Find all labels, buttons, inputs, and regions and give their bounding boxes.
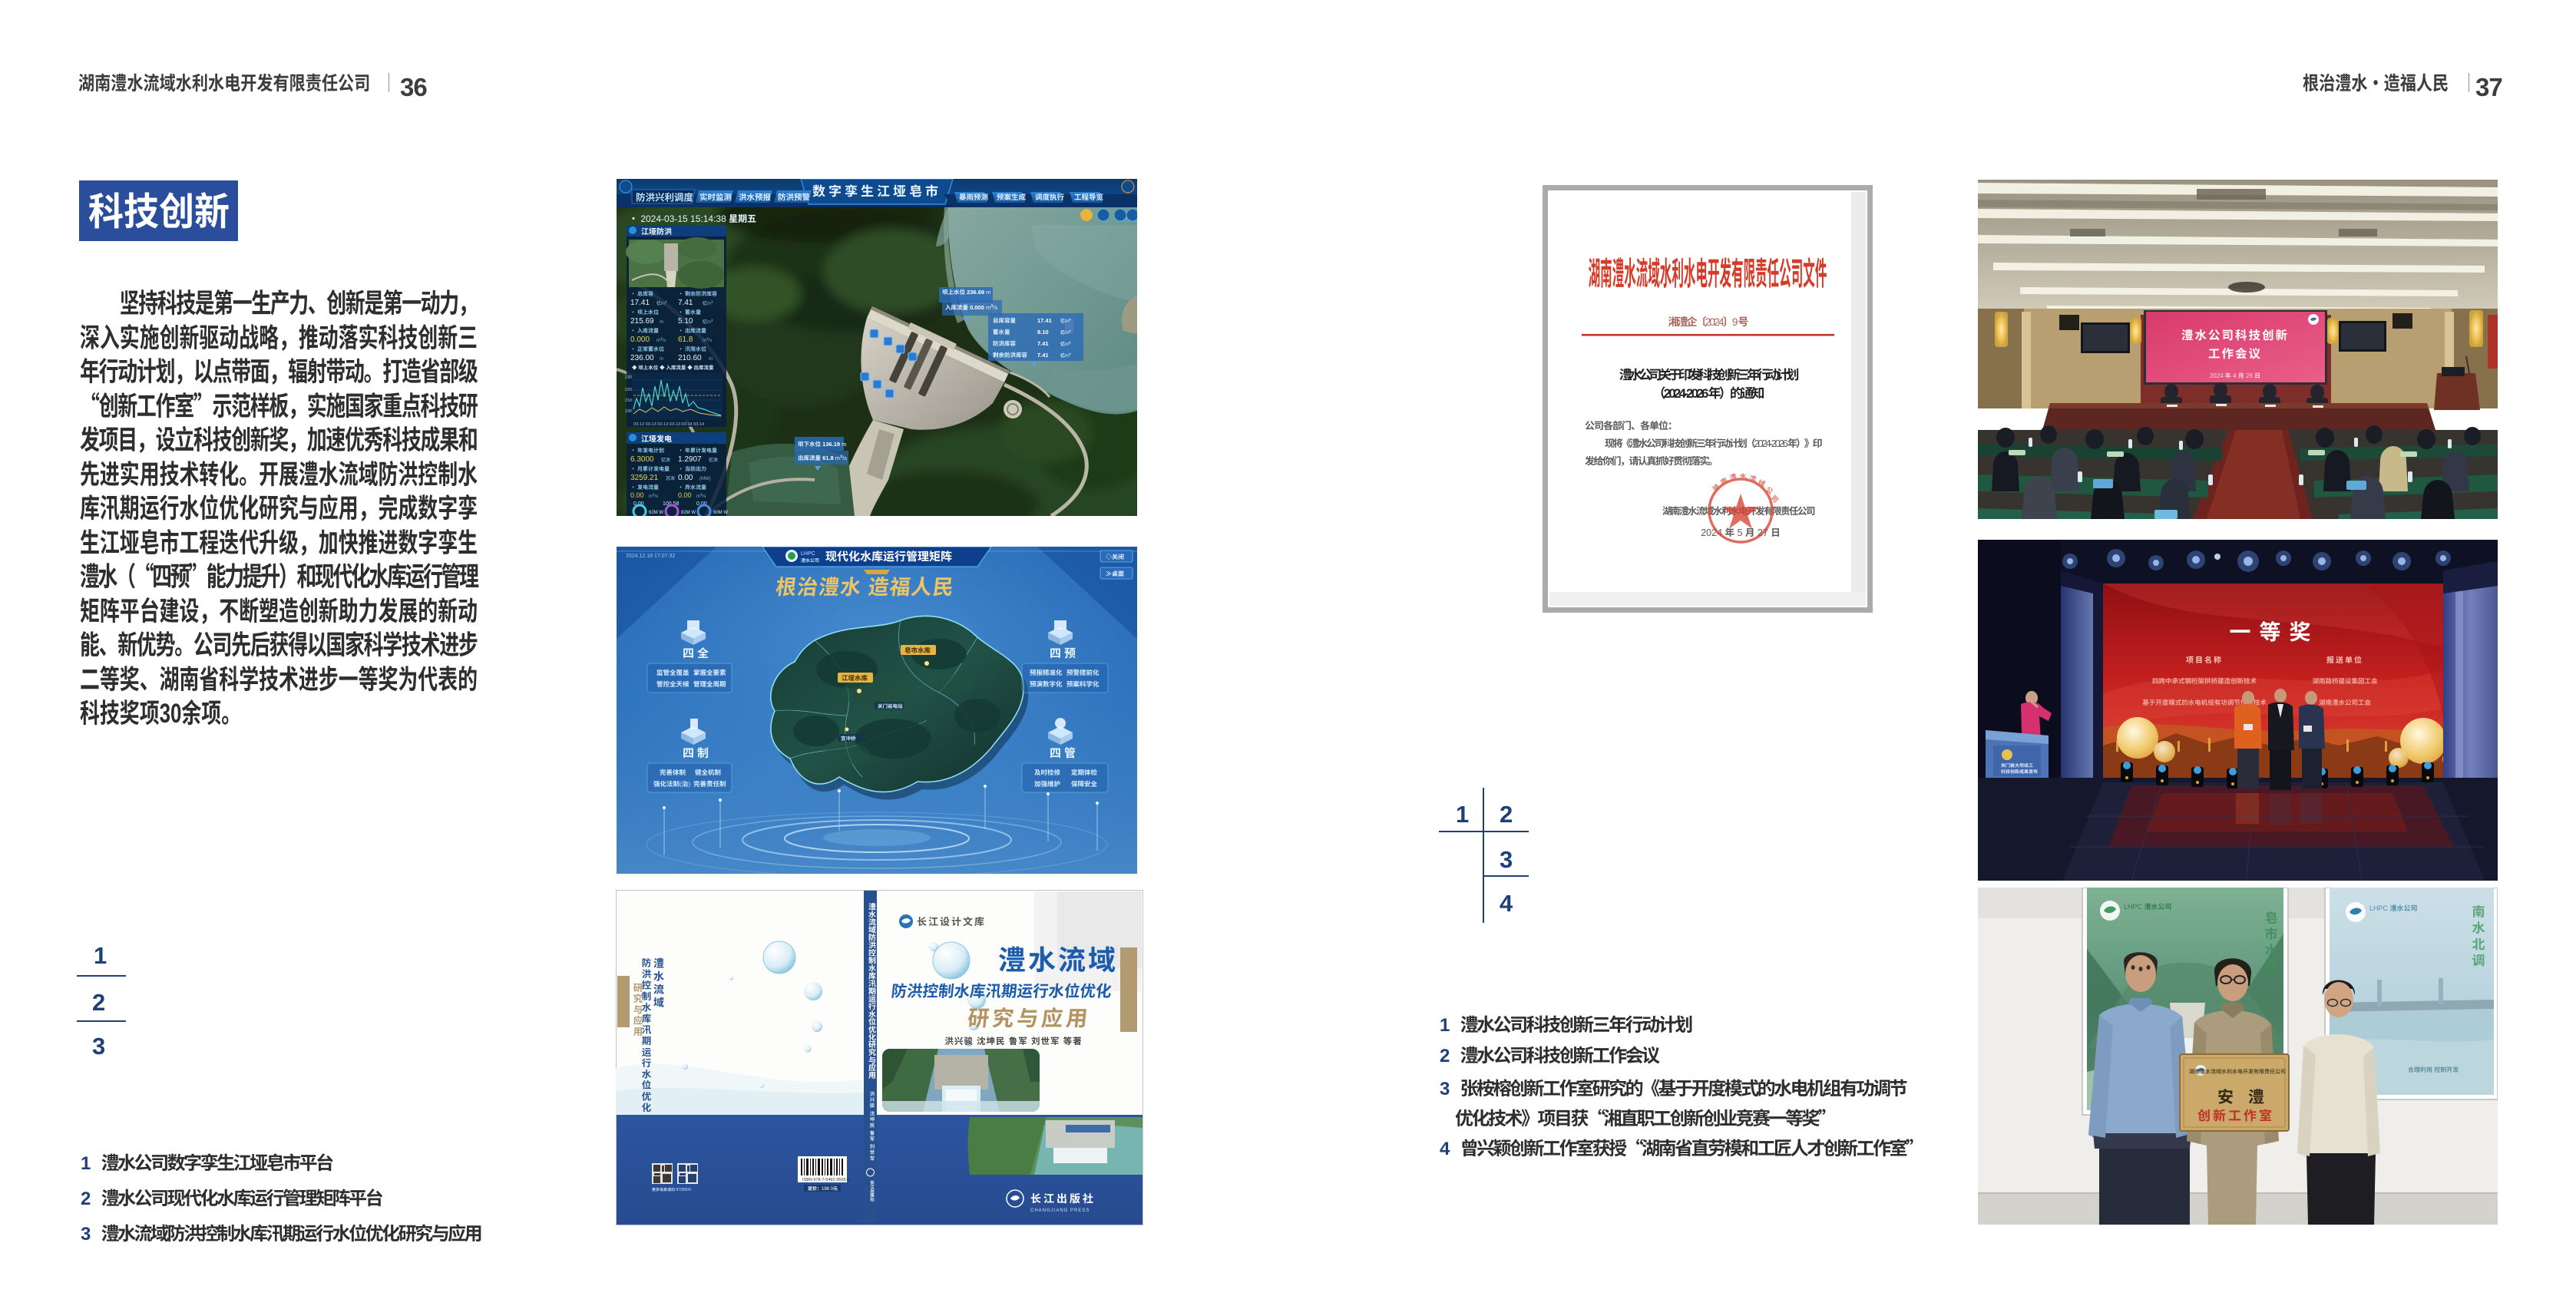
svg-text:210.60: 210.60 [678, 351, 702, 362]
svg-text:澧水公司科技创新: 澧水公司科技创新 [2181, 326, 2289, 343]
svg-text:及时检修: 及时检修 [1034, 768, 1061, 777]
svg-text:61.8: 61.8 [678, 332, 693, 344]
svg-text:预案科学化: 预案科学化 [1066, 679, 1100, 689]
svg-text:预报精准化: 预报精准化 [1030, 668, 1063, 677]
svg-text:万次: 万次 [666, 474, 675, 481]
svg-text:亿m³: 亿m³ [703, 318, 713, 325]
svg-text:洪兴骏 沈坤民 鲁军 刘世军 等著: 洪兴骏 沈坤民 鲁军 刘世军 等著 [944, 1035, 1082, 1047]
svg-text:≫桌面: ≫桌面 [1106, 570, 1124, 578]
svg-text:预警提前化: 预警提前化 [1066, 668, 1100, 677]
svg-text:南水北调: 南水北调 [2469, 904, 2488, 969]
svg-text:防洪兴利调度: 防洪兴利调度 [636, 190, 694, 204]
svg-text:• 2024-03-15 15:14:38 星期五: • 2024-03-15 15:14:38 星期五 [629, 212, 756, 225]
svg-text:亿m³: 亿m³ [1060, 317, 1071, 324]
svg-text:0.00: 0.00 [630, 490, 644, 500]
svg-text:2024.12.18 17:07:32: 2024.12.18 17:07:32 [626, 552, 675, 560]
svg-text:保障安全: 保障安全 [1071, 779, 1098, 789]
svg-text:亿m³: 亿m³ [1060, 340, 1071, 347]
svg-text:四制: 四制 [683, 745, 712, 761]
svg-text:定价：198 0元: 定价：198 0元 [808, 1185, 838, 1192]
svg-text:创新工作室: 创新工作室 [2197, 1105, 2274, 1124]
svg-text:（2024-2026 年）的通知: （2024-2026 年）的通知 [1652, 382, 1764, 402]
svg-text:6.3000: 6.3000 [630, 452, 654, 464]
svg-text:(MW): (MW) [699, 474, 711, 481]
svg-text:出库流量 61.8 m³/s: 出库流量 61.8 m³/s [798, 454, 847, 462]
svg-text:水: 水 [1739, 471, 1747, 481]
svg-text:7.41: 7.41 [678, 296, 693, 307]
svg-text:工作会议: 工作会议 [2208, 345, 2262, 362]
svg-text:报送单位: 报送单位 [2326, 653, 2363, 665]
svg-text:190: 190 [625, 408, 632, 414]
svg-text:62M W: 62M W [649, 508, 663, 515]
svg-text:现代化水库运行管理矩阵: 现代化水库运行管理矩阵 [825, 548, 952, 564]
svg-text:宜冲桥: 宜冲桥 [841, 734, 856, 742]
svg-text:更多信息请扫 8705609: 更多信息请扫 8705609 [652, 1187, 691, 1192]
svg-text:江垭水库: 江垭水库 [842, 673, 868, 683]
svg-text:数字孪生江垭皂市: 数字孪生江垭皂市 [812, 180, 941, 200]
svg-text:215.69: 215.69 [630, 314, 654, 326]
svg-text:掌握全要素: 掌握全要素 [693, 668, 726, 677]
svg-text:防洪库容: 防洪库容 [993, 339, 1016, 348]
svg-text:5.10: 5.10 [678, 314, 693, 326]
svg-text:防洪控制水库汛期运行水位优化: 防洪控制水库汛期运行水位优化 [890, 978, 1113, 1001]
svg-text:剩余防洪库容: 剩余防洪库容 [993, 351, 1027, 359]
svg-text:总库容量: 总库容量 [993, 316, 1016, 325]
svg-text:科技创新成果发布: 科技创新成果发布 [2001, 768, 2038, 775]
svg-text:2024 年 4 月 26 日: 2024 年 4 月 26 日 [2210, 372, 2260, 380]
svg-text:强化法制(治): 强化法制(治) [653, 779, 690, 789]
svg-text:四跨中承式钢桁架拱桥建造创新技术: 四跨中承式钢桁架拱桥建造创新技术 [2152, 676, 2257, 686]
svg-text:CHANGJIANG PRESS: CHANGJIANG PRESS [1030, 1208, 1090, 1213]
svg-text:预演数字化: 预演数字化 [1030, 679, 1063, 689]
svg-text:监管全覆盖: 监管全覆盖 [656, 668, 689, 677]
svg-text:澧水公司: 澧水公司 [801, 557, 819, 564]
svg-text:四管: 四管 [1050, 745, 1079, 761]
svg-text:皂市水库: 皂市水库 [2262, 911, 2281, 975]
svg-text:发给你们，请认真抓好贯彻落实。: 发给你们，请认真抓好贯彻落实。 [1585, 453, 1718, 468]
svg-text:03-12 03-13 03-13 03-13 03-14: 03-12 03-13 03-13 03-13 03-14 03-14 [633, 421, 704, 427]
svg-text:长江出版社: 长江出版社 [869, 1180, 875, 1202]
svg-text:230: 230 [625, 374, 632, 380]
svg-text:7.41: 7.41 [1037, 351, 1049, 359]
svg-text:220: 220 [625, 386, 632, 392]
svg-text:坝上水位 236.69 m: 坝上水位 236.69 m [942, 288, 990, 296]
svg-text:0.00: 0.00 [678, 471, 693, 482]
svg-text:m³/s: m³/s [656, 336, 666, 343]
svg-text:澧水流域防洪控制水库汛期运行水位优化研究与应用: 澧水流域防洪控制水库汛期运行水位优化研究与应用 [867, 902, 878, 1079]
svg-text:四全: 四全 [683, 645, 712, 661]
svg-text:蓄水量: 蓄水量 [993, 328, 1010, 336]
svg-text:湖南路桥建设集团工会: 湖南路桥建设集团工会 [2312, 676, 2378, 686]
svg-text:236.00: 236.00 [630, 351, 654, 362]
svg-text:坝下水位 136.19 m: 坝下水位 136.19 m [798, 440, 846, 448]
svg-text:管理全周期: 管理全周期 [693, 679, 726, 689]
svg-text:1.2907: 1.2907 [678, 452, 702, 464]
svg-text:加强维护: 加强维护 [1034, 779, 1060, 789]
svg-text:长江设计文库: 长江设计文库 [917, 914, 986, 928]
svg-text:m: m [709, 355, 713, 362]
svg-text:m³/s: m³/s [696, 492, 706, 499]
svg-text:定期体检: 定期体检 [1071, 768, 1098, 777]
svg-text:合理利用 控制开发: 合理利用 控制开发 [2408, 1066, 2459, 1074]
svg-text:洪水预报: 洪水预报 [739, 192, 771, 203]
svg-text:17.41: 17.41 [630, 296, 650, 307]
svg-text:湘澧企〔2024〕9 号: 湘澧企〔2024〕9 号 [1668, 314, 1749, 329]
svg-text:ISBN 978-7-5492-9565-9: ISBN 978-7-5492-9565-9 [802, 1178, 849, 1182]
svg-text:研究与应用: 研究与应用 [631, 982, 646, 1038]
svg-text:m: m [660, 355, 663, 362]
svg-text:预案生成: 预案生成 [997, 191, 1027, 202]
svg-text:LHPC 澧水公司: LHPC 澧水公司 [2124, 901, 2172, 911]
svg-text:根治澧水 造福人民: 根治澧水 造福人民 [774, 570, 956, 600]
svg-text:皂市水库: 皂市水库 [904, 646, 931, 655]
svg-text:7.41: 7.41 [1037, 339, 1049, 348]
svg-text:调度执行: 调度执行 [1035, 191, 1065, 202]
svg-text:流: 流 [1749, 473, 1758, 484]
svg-text:公司各部门、各单位：: 公司各部门、各单位： [1585, 418, 1677, 432]
svg-text:健全机制: 健全机制 [695, 768, 721, 777]
svg-text:关门岩电站: 关门岩电站 [878, 702, 903, 709]
svg-text:洪兴骏 沈坤民 鲁军 刘世军: 洪兴骏 沈坤民 鲁军 刘世军 [868, 1091, 876, 1161]
svg-text:实时监测: 实时监测 [699, 192, 732, 203]
svg-text:暴雨预测: 暴雨预测 [959, 191, 988, 202]
svg-text:四预: 四预 [1050, 645, 1079, 661]
svg-text:澧水流域: 澧水流域 [998, 938, 1118, 978]
svg-text:研究与应用: 研究与应用 [966, 1001, 1092, 1033]
svg-text:亿m³: 亿m³ [1060, 329, 1071, 336]
svg-text:入库流量 0.000 m³/s: 入库流量 0.000 m³/s [945, 303, 997, 312]
svg-text:LHPC 澧水公司: LHPC 澧水公司 [2369, 903, 2418, 913]
svg-text:亿次: 亿次 [661, 456, 670, 463]
svg-text:湖南澧水公司工会: 湖南澧水公司工会 [2319, 698, 2372, 707]
svg-text:澧水公司关于印发科技创新三年行动计划: 澧水公司关于印发科技创新三年行动计划 [1619, 364, 1799, 383]
svg-text:亿m³: 亿m³ [656, 299, 667, 306]
svg-text:完善体制: 完善体制 [660, 768, 686, 777]
svg-text:工程导览: 工程导览 [1074, 191, 1104, 202]
svg-text:m³/s: m³/s [649, 492, 658, 499]
svg-text:亿次: 亿次 [709, 456, 718, 463]
svg-text:亿m³: 亿m³ [1060, 352, 1071, 359]
svg-text:项目名称: 项目名称 [2186, 653, 2223, 665]
svg-text:8.10: 8.10 [1037, 328, 1049, 336]
svg-text:0.00: 0.00 [678, 490, 692, 500]
svg-text:82M W: 82M W [681, 508, 696, 515]
svg-text:防洪预警: 防洪预警 [778, 192, 810, 203]
svg-text:长江出版社: 长江出版社 [1030, 1191, 1096, 1206]
svg-text:管控全天候: 管控全天候 [656, 679, 689, 689]
svg-text:现将《澧水公司科技创新三年行动计划（2024-2026 年）: 现将《澧水公司科技创新三年行动计划（2024-2026 年）》印 [1605, 435, 1823, 450]
svg-text:完善责任制: 完善责任制 [693, 779, 726, 789]
svg-text:湖南澧水流域水利水电开发有限责任公司: 湖南澧水流域水利水电开发有限责任公司 [2189, 1068, 2286, 1076]
svg-text:60M W: 60M W [713, 508, 728, 515]
svg-text:m³/s: m³/s [703, 336, 712, 343]
svg-text:一等奖: 一等奖 [2229, 616, 2319, 646]
svg-text:210: 210 [625, 397, 632, 403]
svg-text:湖南澧水流域水利水电开发有限责任公司文件: 湖南澧水流域水利水电开发有限责任公司文件 [1589, 248, 1827, 295]
svg-text:◆ 坝上水位 ◆ 入库流量 ◆ 出库流量: ◆ 坝上水位 ◆ 入库流量 ◆ 出库流量 [632, 363, 714, 371]
svg-text:江垭防洪: 江垭防洪 [641, 225, 672, 236]
svg-text:3259.21: 3259.21 [630, 471, 659, 482]
svg-text:0.000: 0.000 [630, 332, 650, 344]
svg-text:17.41: 17.41 [1037, 316, 1052, 325]
svg-text:◇关闭: ◇关闭 [1106, 553, 1124, 561]
svg-text:亿m³: 亿m³ [703, 299, 713, 306]
svg-text:m: m [660, 318, 663, 325]
svg-text:江垭发电: 江垭发电 [641, 432, 672, 444]
